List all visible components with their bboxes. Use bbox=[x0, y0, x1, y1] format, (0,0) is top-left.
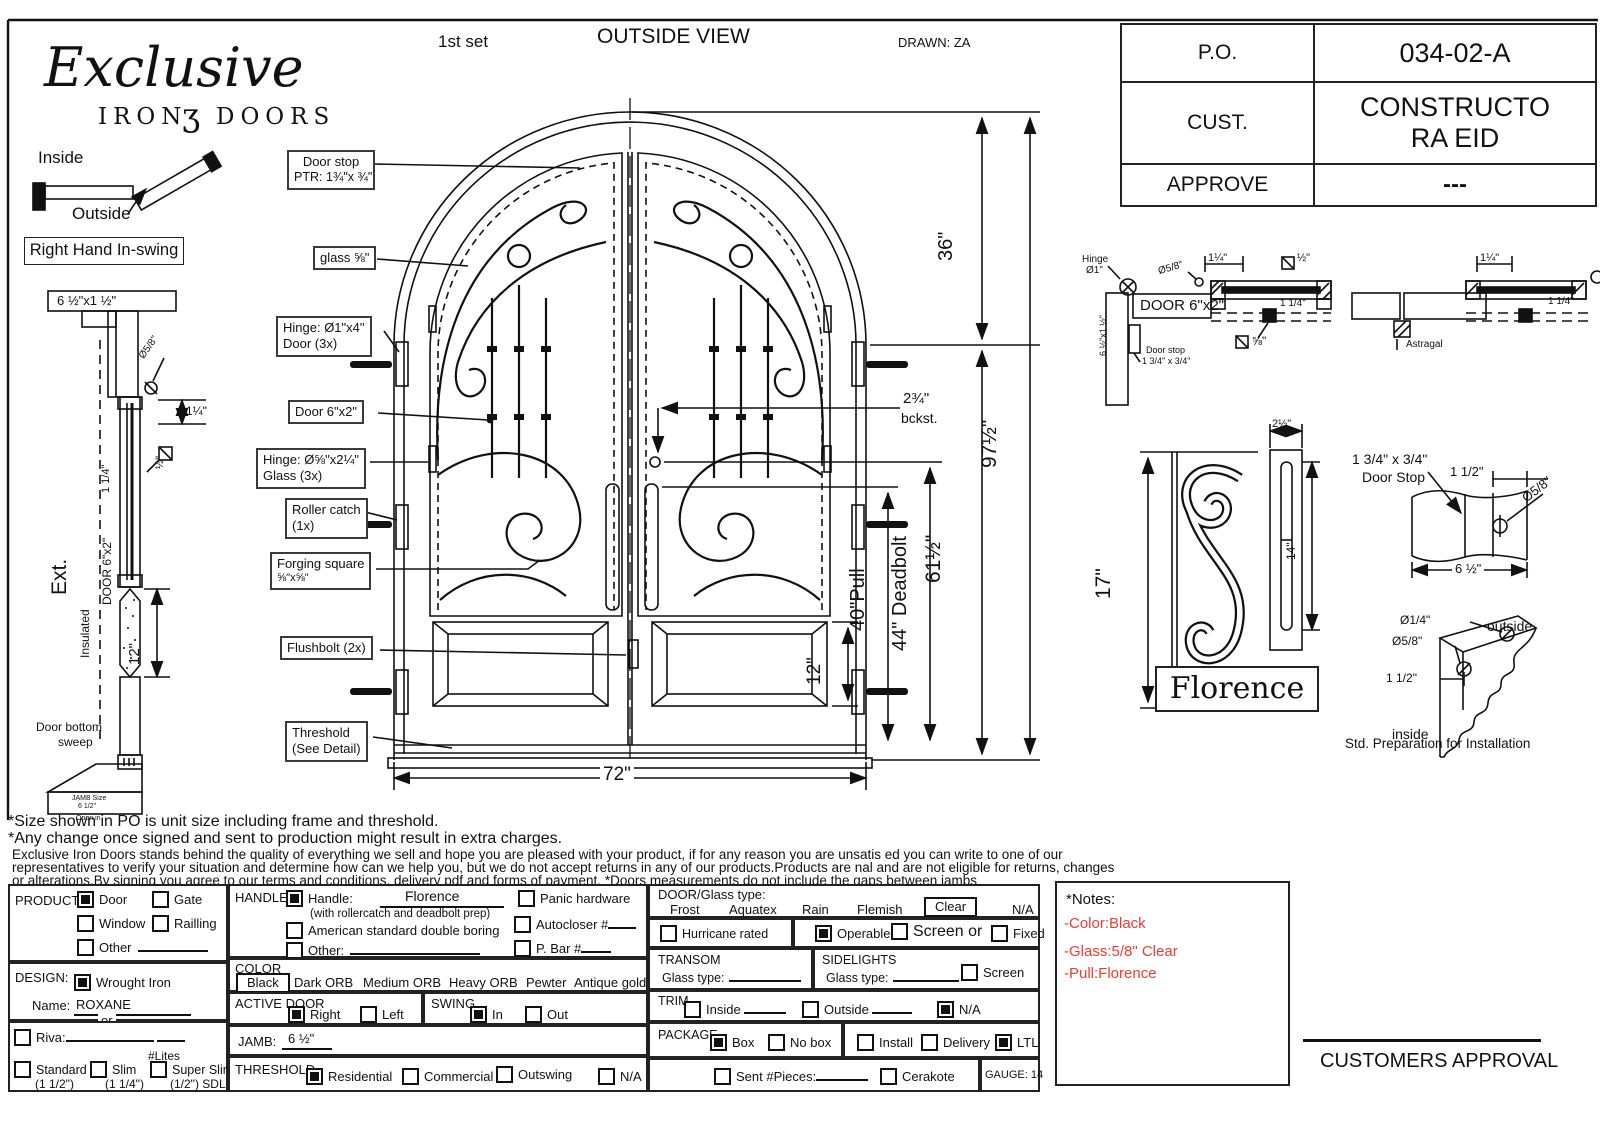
db-dim-114: 1¼" bbox=[1480, 252, 1499, 264]
jamb-section: JAMB: 6 ½" bbox=[228, 1025, 648, 1056]
threshold-label: THRESHOLD bbox=[235, 1062, 315, 1077]
delivery-checkbox bbox=[921, 1034, 938, 1051]
fixed-option: Fixed bbox=[991, 925, 1045, 942]
callout-hinge-glass: Hinge: Ø⅝"x2¼"Glass (3x) bbox=[256, 448, 366, 489]
ltl-option: LTL bbox=[995, 1034, 1038, 1051]
trim-outside-checkbox bbox=[802, 1001, 819, 1018]
panic-checkbox bbox=[518, 890, 535, 907]
threshold-commercial: Commercial bbox=[402, 1068, 493, 1085]
callout-glass: glass ⅝" bbox=[313, 246, 376, 270]
da-stop-1: Door stop bbox=[1146, 345, 1185, 355]
pbar-checkbox bbox=[514, 940, 531, 957]
color-antique-gold: Antique gold bbox=[574, 975, 646, 990]
glass-aquatex: Aquatex bbox=[729, 902, 777, 917]
threshold-residential: Residential bbox=[306, 1068, 392, 1085]
dim-12-panel: 12" bbox=[804, 657, 826, 685]
panic-option: Panic hardware bbox=[518, 890, 630, 907]
package-label: PACKAGE bbox=[658, 1028, 718, 1042]
note-line-2: *Any change once signed and sent to prod… bbox=[8, 830, 562, 848]
da-stop-2: 1 3/4" x 3/4" bbox=[1142, 356, 1190, 366]
transom-section: TRANSOM Glass type: bbox=[648, 948, 813, 990]
threshold-na-checkbox bbox=[598, 1068, 615, 1085]
handle-other-checkbox bbox=[286, 942, 303, 959]
operable-section: Operable Screen or Fixed bbox=[793, 918, 1040, 948]
lp-dim-114v: 1 1/4" bbox=[100, 465, 112, 493]
approval-signature-line bbox=[1303, 1039, 1541, 1042]
product-door: Door bbox=[77, 891, 127, 908]
product-railling: Railling bbox=[152, 915, 217, 932]
dim-61-5: 61½" bbox=[922, 535, 946, 583]
product-other: Other bbox=[77, 939, 208, 956]
inside-label: Inside bbox=[38, 148, 83, 168]
product-other-checkbox bbox=[77, 939, 94, 956]
design-name-label: Name: bbox=[32, 998, 70, 1013]
outswing-checkbox bbox=[496, 1066, 513, 1083]
dim-backset: 2¾" bbox=[903, 390, 929, 407]
lp-jamb-2: 6 1/2" bbox=[78, 803, 96, 810]
threshold-outswing: Outswing bbox=[496, 1066, 572, 1083]
da-dim-114i: 1 1/4" bbox=[1280, 298, 1306, 309]
sd-dim-w: 6 ½" bbox=[1452, 561, 1484, 576]
da-dim-114: 1¼" bbox=[1208, 252, 1227, 264]
note-glass: -Glass:5/8" Clear bbox=[1064, 943, 1178, 960]
handle-other-option: Other: bbox=[286, 942, 480, 959]
american-option: American standard double boring bbox=[286, 922, 500, 939]
standard-size: (1 1/2") bbox=[35, 1077, 74, 1091]
glass-na: N/A bbox=[1012, 902, 1034, 917]
cerakote-option: Cerakote bbox=[880, 1068, 955, 1085]
lp-door-label: DOOR 6"x2" bbox=[100, 538, 114, 605]
lp-sweep-2: sweep bbox=[58, 735, 93, 749]
florence-name: Florence bbox=[1155, 666, 1319, 712]
color-medium-orb: Medium ORB bbox=[363, 975, 441, 990]
sd-dim-112: 1 1/2" bbox=[1450, 464, 1484, 479]
cust-label: CUST. bbox=[1122, 83, 1315, 165]
cerakote-checkbox bbox=[880, 1068, 897, 1085]
lp-jamb-1: JAMB Size bbox=[72, 795, 106, 802]
slim-option: Slim bbox=[90, 1061, 136, 1078]
swing-out: Out bbox=[525, 1006, 568, 1023]
slim-checkbox bbox=[90, 1061, 107, 1078]
active-door-section: ACTIVE DOOR Right Left bbox=[228, 992, 423, 1025]
autocloser-option: Autocloser # bbox=[514, 916, 636, 933]
dim-36: 36" bbox=[935, 232, 958, 261]
db-astragal: Astragal bbox=[1406, 339, 1443, 350]
screen-checkbox bbox=[891, 923, 908, 940]
sent-checkbox bbox=[714, 1068, 731, 1085]
dim-40-pull: 40"Pull bbox=[847, 568, 870, 631]
brand-scroll-icon: ʒ bbox=[182, 96, 200, 134]
lp-head-dim: 6 ½"x1 ½" bbox=[57, 293, 116, 308]
swing-label: Right Hand In-swing bbox=[24, 237, 184, 265]
trim-section: TRIM Inside Outside N/A bbox=[648, 990, 1040, 1022]
cd-phi14: Ø1/4" bbox=[1400, 613, 1430, 627]
swing-in: In bbox=[470, 1006, 503, 1023]
gauge-section: GAUGE: 14 bbox=[980, 1058, 1040, 1092]
sent-section: Sent #Pieces: Cerakote bbox=[648, 1058, 980, 1092]
sidelights-label: SIDELIGHTS bbox=[822, 953, 896, 967]
brand-sub-iron: IRON bbox=[98, 104, 187, 130]
design-label: DESIGN: bbox=[15, 970, 68, 985]
right-checkbox bbox=[288, 1006, 305, 1023]
fl-dim-14: 14" bbox=[1284, 542, 1298, 560]
sidelights-section: SIDELIGHTS Glass type: Screen bbox=[813, 948, 1040, 990]
note-pull: -Pull:Florence bbox=[1064, 965, 1157, 982]
gate-checkbox bbox=[152, 891, 169, 908]
glass-flemish: Flemish bbox=[857, 902, 903, 917]
view-title: OUTSIDE VIEW bbox=[597, 25, 750, 49]
in-checkbox bbox=[470, 1006, 487, 1023]
pbar-option: P. Bar # bbox=[514, 940, 611, 957]
set-label: 1st set bbox=[438, 32, 488, 52]
trim-inside-checkbox bbox=[684, 1001, 701, 1018]
design-section: DESIGN: Wrought Iron Name: ROXANE bbox=[8, 962, 228, 1021]
outside-label: Outside bbox=[72, 204, 131, 224]
callout-forging-square: Forging square⅝"x⅝" bbox=[270, 552, 371, 590]
residential-checkbox bbox=[306, 1068, 323, 1085]
threshold-section: THRESHOLD Residential Commercial Outswin… bbox=[228, 1056, 648, 1092]
po-label: P.O. bbox=[1122, 25, 1315, 83]
cd-dim-112: 1 1/2" bbox=[1386, 671, 1417, 685]
standard-option: Standard bbox=[14, 1061, 87, 1078]
trim-inside-option: Inside bbox=[684, 1001, 786, 1018]
package-nobox-option: No box bbox=[768, 1034, 831, 1051]
cd-caption: Std. Preparation for Installation bbox=[1345, 736, 1530, 751]
callout-door: Door 6"x2" bbox=[288, 400, 364, 424]
brand-sub-doors: DOORS bbox=[216, 104, 335, 130]
da-jamb-dim: 6 ½"x1 ½" bbox=[1098, 315, 1108, 356]
hurricane-section: Hurricane rated bbox=[648, 918, 793, 948]
dim-backset-sub: bckst. bbox=[901, 410, 938, 426]
callout-door-stop: Door stopPTR: 1¾"x ¾" bbox=[287, 150, 375, 190]
lp-insulated-label: Insulated bbox=[78, 609, 92, 658]
approve-label: APPROVE bbox=[1122, 165, 1315, 205]
handle-sub: (with rollercatch and deadbolt prep) bbox=[310, 908, 490, 920]
trim-na-checkbox bbox=[937, 1001, 954, 1018]
fl-dim-17: 17" bbox=[1092, 568, 1116, 599]
commercial-checkbox bbox=[402, 1068, 419, 1085]
jamb-label: JAMB: bbox=[238, 1034, 276, 1049]
autocloser-checkbox bbox=[514, 916, 531, 933]
drawn-by-label: DRAWN: ZA bbox=[898, 35, 970, 50]
sent-option: Sent #Pieces: bbox=[714, 1068, 868, 1085]
brand-logo: Exclusive bbox=[44, 36, 304, 99]
note-color: -Color:Black bbox=[1064, 915, 1146, 932]
transom-label: TRANSOM bbox=[658, 953, 721, 967]
glass-type-label: DOOR/Glass type: bbox=[658, 887, 766, 902]
da-sq58: ⅝" bbox=[1252, 334, 1266, 348]
handle-value: Florence bbox=[380, 888, 504, 908]
db-dim-114i: 1 1/4" bbox=[1548, 296, 1574, 307]
superslim-option: Super Slim bbox=[150, 1061, 233, 1078]
nobox-checkbox bbox=[768, 1034, 785, 1051]
cd-phi58: Ø5/8" bbox=[1392, 634, 1422, 648]
da-door-label: DOOR 6"x2" bbox=[1140, 297, 1224, 314]
sd-title-1: 1 3/4" x 3/4" bbox=[1352, 451, 1427, 467]
sidelights-glass-label: Glass type: bbox=[826, 969, 959, 985]
product-window: Window bbox=[77, 915, 145, 932]
glass-type-section: DOOR/Glass type: Frost Aquatex Rain Flem… bbox=[648, 884, 1040, 918]
product-section: PRODUCT: Door Gate Window Railling Other bbox=[8, 884, 228, 962]
color-black: Black bbox=[236, 973, 290, 993]
product-gate: Gate bbox=[152, 891, 202, 908]
active-right: Right bbox=[288, 1006, 340, 1023]
box-checkbox bbox=[710, 1034, 727, 1051]
da-hinge-1: Hinge bbox=[1082, 254, 1108, 265]
install-checkbox bbox=[857, 1034, 874, 1051]
door-checkbox bbox=[77, 891, 94, 908]
lp-sq12: ½" bbox=[154, 456, 166, 469]
lp-sweep-1: Door bottom bbox=[36, 720, 102, 734]
hinge-detail-a-art bbox=[1106, 256, 1331, 405]
callout-threshold: Threshold(See Detail) bbox=[285, 721, 368, 762]
dim-97-5: 97½" bbox=[978, 420, 1002, 468]
product-label: PRODUCT: bbox=[15, 893, 81, 908]
riva-checkbox bbox=[14, 1029, 31, 1046]
da-sq12: ½" bbox=[1297, 252, 1310, 264]
active-left: Left bbox=[360, 1006, 404, 1023]
sidelights-screen-checkbox bbox=[961, 964, 978, 981]
handle-section: HANDLE Handle: Florence (with rollercatc… bbox=[228, 884, 648, 958]
railling-checkbox bbox=[152, 915, 169, 932]
cust-value: CONSTRUCTORA EID bbox=[1315, 83, 1595, 165]
operable-option: Operable bbox=[815, 925, 890, 942]
drawing-sheet: Exclusive IRON ʒ DOORS 1st set OUTSIDE V… bbox=[0, 0, 1600, 1126]
out-checkbox bbox=[525, 1006, 542, 1023]
american-boring-checkbox bbox=[286, 922, 303, 939]
lp-ext-label: Ext. bbox=[48, 559, 72, 595]
left-checkbox bbox=[360, 1006, 377, 1023]
da-hinge-2: Ø1" bbox=[1086, 265, 1103, 276]
slim-size: (1 1/4") bbox=[105, 1077, 144, 1091]
sidelights-screen-option: Screen bbox=[961, 964, 1024, 981]
title-block: P.O. 034-02-A CUST. CONSTRUCTORA EID APP… bbox=[1120, 23, 1597, 207]
superslim-size: (1/2") SDL bbox=[170, 1077, 226, 1091]
package-box-option: Box bbox=[710, 1034, 754, 1051]
standard-checkbox bbox=[14, 1061, 31, 1078]
wrought-iron-checkbox bbox=[74, 974, 91, 991]
dim-44-deadbolt: 44" Deadbolt bbox=[889, 536, 912, 651]
delivery-option: Delivery bbox=[921, 1034, 990, 1051]
glass-clear: Clear bbox=[924, 897, 977, 917]
color-heavy-orb: Heavy ORB bbox=[449, 975, 518, 990]
superslim-checkbox bbox=[150, 1061, 167, 1078]
sd-title-2: Door Stop bbox=[1362, 469, 1425, 485]
callout-hinge-door: Hinge: Ø1"x4"Door (3x) bbox=[276, 316, 372, 357]
trim-outside-option: Outside bbox=[802, 1001, 912, 1018]
color-pewter: Pewter bbox=[526, 975, 566, 990]
delivery-section: Install Delivery LTL bbox=[843, 1022, 1040, 1058]
swing-section: SWING In Out bbox=[423, 992, 648, 1025]
po-value: 034-02-A bbox=[1315, 25, 1595, 83]
handle-label: HANDLE bbox=[235, 890, 288, 905]
notes-title: *Notes: bbox=[1066, 891, 1115, 908]
handle-checkbox bbox=[286, 890, 303, 907]
fl-dim-25: 2½" bbox=[1272, 418, 1291, 430]
lp-dim-12: 12" bbox=[126, 643, 143, 665]
screen-or-option: Screen or bbox=[891, 923, 982, 941]
cd-outside: outside bbox=[1487, 618, 1532, 634]
callout-roller-catch: Roller catch(1x) bbox=[285, 498, 368, 539]
install-option: Install bbox=[857, 1034, 913, 1051]
trim-na-option: N/A bbox=[937, 1001, 981, 1018]
gauge-value: GAUGE: 14 bbox=[985, 1069, 1043, 1081]
approve-value: --- bbox=[1315, 165, 1595, 205]
jamb-value: 6 ½" bbox=[282, 1031, 332, 1050]
notes-box: *Notes: -Color:Black -Glass:5/8" Clear -… bbox=[1055, 881, 1290, 1086]
window-checkbox bbox=[77, 915, 94, 932]
operable-checkbox bbox=[815, 925, 832, 942]
color-section: COLOR Black Dark ORB Medium ORB Heavy OR… bbox=[228, 958, 648, 992]
design-name-value: ROXANE bbox=[74, 997, 191, 1016]
lp-dim-114: 1¼" bbox=[186, 404, 207, 418]
approval-label: CUSTOMERS APPROVAL bbox=[1320, 1050, 1558, 1073]
handle-option: Handle: bbox=[286, 890, 353, 907]
fixed-checkbox bbox=[991, 925, 1008, 942]
riva-option: Riva: bbox=[14, 1029, 185, 1046]
color-dark-orb: Dark ORB bbox=[294, 975, 353, 990]
ltl-checkbox bbox=[995, 1034, 1012, 1051]
note-line-1: *Size shown in PO is unit size including… bbox=[8, 813, 438, 831]
glass-rain: Rain bbox=[802, 902, 829, 917]
threshold-na: N/A bbox=[598, 1068, 642, 1085]
hurricane-option: Hurricane rated bbox=[660, 925, 768, 942]
transom-glass-label: Glass type: bbox=[662, 969, 801, 985]
dim-72: 72" bbox=[600, 764, 634, 786]
glass-frost: Frost bbox=[670, 902, 700, 917]
callout-flushbolt: Flushbolt (2x) bbox=[280, 636, 373, 660]
hurricane-checkbox bbox=[660, 925, 677, 942]
design-wrought: Wrought Iron bbox=[74, 974, 171, 991]
swing-label: SWING bbox=[431, 996, 475, 1011]
riva-section: Riva: #Lites Standard (1 1/2") Slim (1 1… bbox=[8, 1021, 228, 1092]
package-section: PACKAGE Box No box bbox=[648, 1022, 843, 1058]
